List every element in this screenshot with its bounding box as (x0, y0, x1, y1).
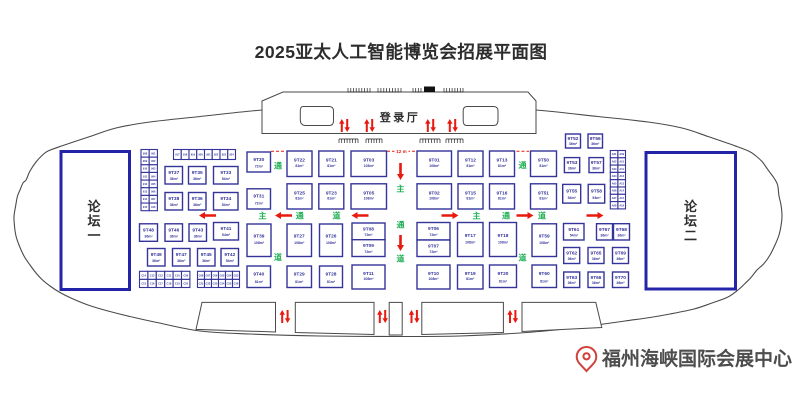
svg-text:9T12: 9T12 (465, 158, 476, 164)
svg-text:9T46: 9T46 (168, 228, 179, 234)
svg-text:C07: C07 (206, 273, 211, 277)
svg-text:36m²: 36m² (617, 233, 626, 237)
svg-text:9T50: 9T50 (538, 158, 549, 164)
svg-text:C05: C05 (220, 273, 225, 277)
svg-text:9T49: 9T49 (151, 252, 162, 258)
svg-text:36m²: 36m² (616, 281, 625, 285)
svg-text:登录厅: 登录厅 (379, 110, 421, 124)
svg-text:C09: C09 (183, 273, 188, 277)
svg-text:914: 914 (143, 197, 148, 201)
svg-text:907: 907 (151, 197, 156, 201)
svg-text:C21: C21 (199, 281, 204, 285)
svg-text:9T01: 9T01 (429, 158, 440, 164)
svg-text:通: 通 (397, 219, 405, 229)
svg-text:36m²: 36m² (568, 166, 577, 170)
svg-text:108m²: 108m² (326, 241, 337, 245)
svg-text:108m²: 108m² (254, 241, 265, 245)
svg-text:917: 917 (175, 153, 180, 157)
svg-text:9T03: 9T03 (363, 158, 374, 164)
svg-text:915: 915 (143, 205, 148, 209)
svg-text:9T31: 9T31 (253, 194, 264, 200)
svg-text:9T55: 9T55 (566, 189, 577, 195)
svg-text:81m²: 81m² (539, 164, 548, 168)
svg-text:36m²: 36m² (568, 257, 577, 261)
svg-text:C13: C13 (150, 273, 155, 277)
svg-text:C18: C18 (167, 281, 172, 285)
svg-text:916: 916 (151, 205, 156, 209)
svg-text:54m²: 54m² (592, 196, 601, 200)
svg-text:81m²: 81m² (539, 196, 548, 200)
svg-text:72m²: 72m² (429, 250, 438, 254)
svg-text:通: 通 (274, 160, 282, 170)
svg-text:36m²: 36m² (170, 203, 179, 207)
svg-text:54m²: 54m² (568, 196, 577, 200)
svg-text:36m²: 36m² (202, 259, 211, 263)
svg-text:9T41: 9T41 (221, 226, 232, 232)
svg-text:36m²: 36m² (152, 259, 161, 263)
svg-text:9T29: 9T29 (294, 272, 305, 278)
svg-text:9T62: 9T62 (566, 251, 577, 257)
svg-text:9T07: 9T07 (428, 243, 439, 249)
svg-text:A14: A14 (619, 189, 624, 193)
svg-text:919: 919 (191, 153, 196, 157)
svg-text:72m²: 72m² (255, 165, 264, 169)
svg-text:36m²: 36m² (569, 142, 578, 146)
svg-text:C26: C26 (234, 281, 239, 285)
svg-text:108m²: 108m² (429, 164, 440, 168)
svg-text:9T58: 9T58 (591, 189, 602, 195)
svg-text:道: 道 (333, 210, 341, 220)
svg-text:C12: C12 (158, 273, 163, 277)
svg-text:81m²: 81m² (498, 196, 507, 200)
svg-text:911: 911 (143, 174, 148, 178)
svg-text:909: 909 (143, 159, 148, 163)
svg-text:922: 922 (214, 153, 219, 157)
svg-text:72m²: 72m² (364, 250, 373, 254)
svg-text:912: 912 (143, 182, 148, 186)
svg-text:72m²: 72m² (255, 202, 264, 206)
svg-text:9T13: 9T13 (497, 158, 508, 164)
svg-text:72m²: 72m² (429, 233, 438, 237)
svg-text:A02: A02 (612, 159, 617, 163)
svg-text:36m²: 36m² (193, 203, 202, 207)
svg-text:920: 920 (198, 153, 203, 157)
svg-text:54m²: 54m² (222, 203, 231, 207)
svg-text:道: 道 (519, 252, 527, 262)
svg-text:9T09: 9T09 (363, 243, 374, 249)
svg-text:A13: A13 (619, 181, 624, 185)
svg-text:C04: C04 (227, 273, 232, 277)
svg-text:A12: A12 (619, 174, 624, 178)
svg-text:54m²: 54m² (222, 177, 231, 181)
svg-text:108m²: 108m² (539, 241, 550, 245)
svg-text:81m²: 81m² (295, 280, 304, 284)
svg-text:9T68: 9T68 (616, 227, 627, 233)
svg-text:C03: C03 (234, 273, 239, 277)
svg-text:A10: A10 (619, 159, 624, 163)
svg-text:9T21: 9T21 (326, 158, 337, 164)
svg-text:9T67: 9T67 (599, 227, 610, 233)
svg-text:9T39: 9T39 (254, 234, 265, 240)
svg-text:9T45: 9T45 (201, 252, 212, 258)
svg-text:9T65: 9T65 (591, 251, 602, 257)
svg-text:道: 道 (538, 210, 546, 220)
svg-text:108m²: 108m² (498, 241, 509, 245)
svg-text:A11: A11 (619, 167, 624, 171)
svg-text:C25: C25 (227, 281, 232, 285)
svg-text:C14: C14 (141, 273, 146, 277)
svg-text:36m²: 36m² (177, 259, 186, 263)
svg-text:904: 904 (151, 174, 156, 178)
svg-text:C11: C11 (167, 273, 172, 277)
svg-text:81m²: 81m² (295, 164, 304, 168)
svg-text:A01: A01 (612, 152, 617, 156)
svg-text:A08: A08 (612, 203, 617, 207)
svg-text:9T57: 9T57 (591, 160, 602, 166)
svg-text:A06: A06 (612, 189, 617, 193)
svg-text:906: 906 (151, 190, 156, 194)
svg-text:54m²: 54m² (222, 233, 231, 237)
svg-text:9T27: 9T27 (294, 234, 305, 240)
svg-text:9T06: 9T06 (428, 226, 439, 232)
svg-text:108m²: 108m² (465, 241, 476, 245)
svg-text:54m²: 54m² (226, 259, 235, 263)
svg-text:C23: C23 (213, 281, 218, 285)
svg-text:918: 918 (183, 153, 188, 157)
svg-text:9T08: 9T08 (363, 226, 374, 232)
svg-text:108m²: 108m² (429, 196, 440, 200)
svg-text:9T40: 9T40 (253, 272, 264, 278)
svg-text:9T33: 9T33 (220, 170, 231, 176)
svg-text:36m²: 36m² (193, 177, 202, 181)
svg-text:36m²: 36m² (170, 177, 179, 181)
svg-text:C06: C06 (213, 273, 218, 277)
svg-text:C19: C19 (175, 281, 180, 285)
svg-text:A03: A03 (612, 167, 617, 171)
svg-text:108m²: 108m² (294, 241, 305, 245)
svg-text:903: 903 (151, 167, 156, 171)
svg-text:12 m: 12 m (396, 149, 406, 154)
svg-text:81m²: 81m² (255, 280, 264, 284)
svg-text:913: 913 (143, 190, 148, 194)
svg-text:一: 一 (87, 228, 100, 243)
svg-text:主: 主 (259, 210, 267, 220)
svg-text:924: 924 (229, 153, 234, 157)
svg-text:9T60: 9T60 (539, 271, 550, 277)
svg-text:A09: A09 (619, 152, 624, 156)
svg-text:81m²: 81m² (295, 196, 304, 200)
svg-text:36m²: 36m² (591, 142, 600, 146)
svg-text:9T47: 9T47 (176, 252, 187, 258)
svg-text:901: 901 (151, 151, 156, 155)
svg-text:道: 道 (397, 253, 405, 263)
svg-text:905: 905 (151, 182, 156, 186)
svg-text:福州海峡国际会展中心: 福州海峡国际会展中心 (601, 347, 792, 370)
svg-text:9T26: 9T26 (326, 234, 337, 240)
svg-text:9T35: 9T35 (192, 170, 203, 176)
svg-text:A04: A04 (612, 174, 617, 178)
svg-text:C22: C22 (206, 281, 211, 285)
svg-text:9T63: 9T63 (566, 275, 577, 281)
svg-text:36m²: 36m² (616, 257, 625, 261)
svg-text:81m²: 81m² (327, 164, 336, 168)
svg-text:54m²: 54m² (570, 233, 579, 237)
svg-text:36m²: 36m² (592, 281, 601, 285)
svg-text:主: 主 (397, 183, 405, 193)
svg-text:9T18: 9T18 (498, 233, 509, 239)
svg-text:9T36: 9T36 (192, 196, 203, 202)
svg-text:坛: 坛 (87, 214, 100, 229)
svg-text:9T34: 9T34 (220, 196, 231, 202)
svg-text:36m²: 36m² (600, 233, 609, 237)
svg-text:902: 902 (151, 159, 156, 163)
svg-text:921: 921 (206, 153, 211, 157)
svg-text:二: 二 (684, 228, 697, 243)
svg-text:道: 道 (274, 252, 282, 262)
svg-text:36m²: 36m² (144, 235, 153, 239)
svg-text:36m²: 36m² (592, 166, 601, 170)
svg-text:9T42: 9T42 (224, 252, 235, 258)
svg-text:72m²: 72m² (364, 233, 373, 237)
svg-text:A16: A16 (619, 203, 624, 207)
svg-text:81m²: 81m² (327, 280, 336, 284)
svg-text:论: 论 (684, 199, 698, 214)
svg-text:通: 通 (502, 210, 510, 220)
svg-text:9T30: 9T30 (253, 157, 264, 163)
svg-text:9T70: 9T70 (615, 275, 626, 281)
svg-text:81m²: 81m² (498, 164, 507, 168)
svg-text:9T28: 9T28 (326, 272, 337, 278)
svg-text:9T48: 9T48 (143, 228, 154, 234)
svg-text:C24: C24 (220, 281, 225, 285)
svg-text:9T61: 9T61 (568, 227, 579, 233)
svg-text:A15: A15 (619, 196, 624, 200)
svg-text:9T22: 9T22 (294, 158, 305, 164)
svg-text:论: 论 (87, 199, 101, 214)
svg-text:9T37: 9T37 (168, 170, 179, 176)
svg-text:通: 通 (296, 210, 304, 220)
svg-text:A05: A05 (612, 181, 617, 185)
svg-text:108m²: 108m² (364, 196, 375, 200)
svg-text:81m²: 81m² (327, 196, 336, 200)
svg-text:9T59: 9T59 (539, 234, 550, 240)
svg-text:36m²: 36m² (592, 257, 601, 261)
svg-text:108m²: 108m² (428, 277, 439, 281)
svg-text:36m²: 36m² (568, 281, 577, 285)
svg-text:36m²: 36m² (170, 235, 179, 239)
svg-text:C15: C15 (141, 281, 146, 285)
svg-text:A07: A07 (612, 196, 617, 200)
svg-text:81m²: 81m² (466, 164, 475, 168)
svg-text:主: 主 (473, 210, 481, 220)
svg-text:81m²: 81m² (540, 280, 549, 284)
svg-text:910: 910 (143, 167, 148, 171)
svg-text:923: 923 (222, 153, 227, 157)
svg-text:9T69: 9T69 (615, 251, 626, 257)
svg-text:9T53: 9T53 (567, 160, 578, 166)
svg-text:9T17: 9T17 (465, 233, 476, 239)
svg-text:坛: 坛 (684, 214, 697, 229)
svg-text:9T20: 9T20 (498, 271, 509, 277)
svg-text:9T43: 9T43 (192, 228, 203, 234)
svg-text:C08: C08 (199, 273, 204, 277)
svg-text:C17: C17 (158, 281, 163, 285)
svg-text:C10: C10 (175, 273, 180, 277)
svg-text:108m²: 108m² (364, 164, 375, 168)
svg-text:C16: C16 (150, 281, 155, 285)
svg-text:908: 908 (143, 151, 148, 155)
svg-text:108m²: 108m² (363, 277, 374, 281)
svg-text:81m²: 81m² (466, 196, 475, 200)
svg-text:C20: C20 (183, 281, 188, 285)
svg-text:81m²: 81m² (466, 277, 475, 281)
svg-text:通: 通 (519, 160, 527, 170)
svg-text:81m²: 81m² (499, 280, 508, 284)
svg-text:2025亚太人工智能博览会招展平面图: 2025亚太人工智能博览会招展平面图 (255, 42, 548, 62)
svg-text:9T66: 9T66 (591, 275, 602, 281)
svg-text:36m²: 36m² (194, 235, 203, 239)
svg-text:9T38: 9T38 (168, 196, 179, 202)
